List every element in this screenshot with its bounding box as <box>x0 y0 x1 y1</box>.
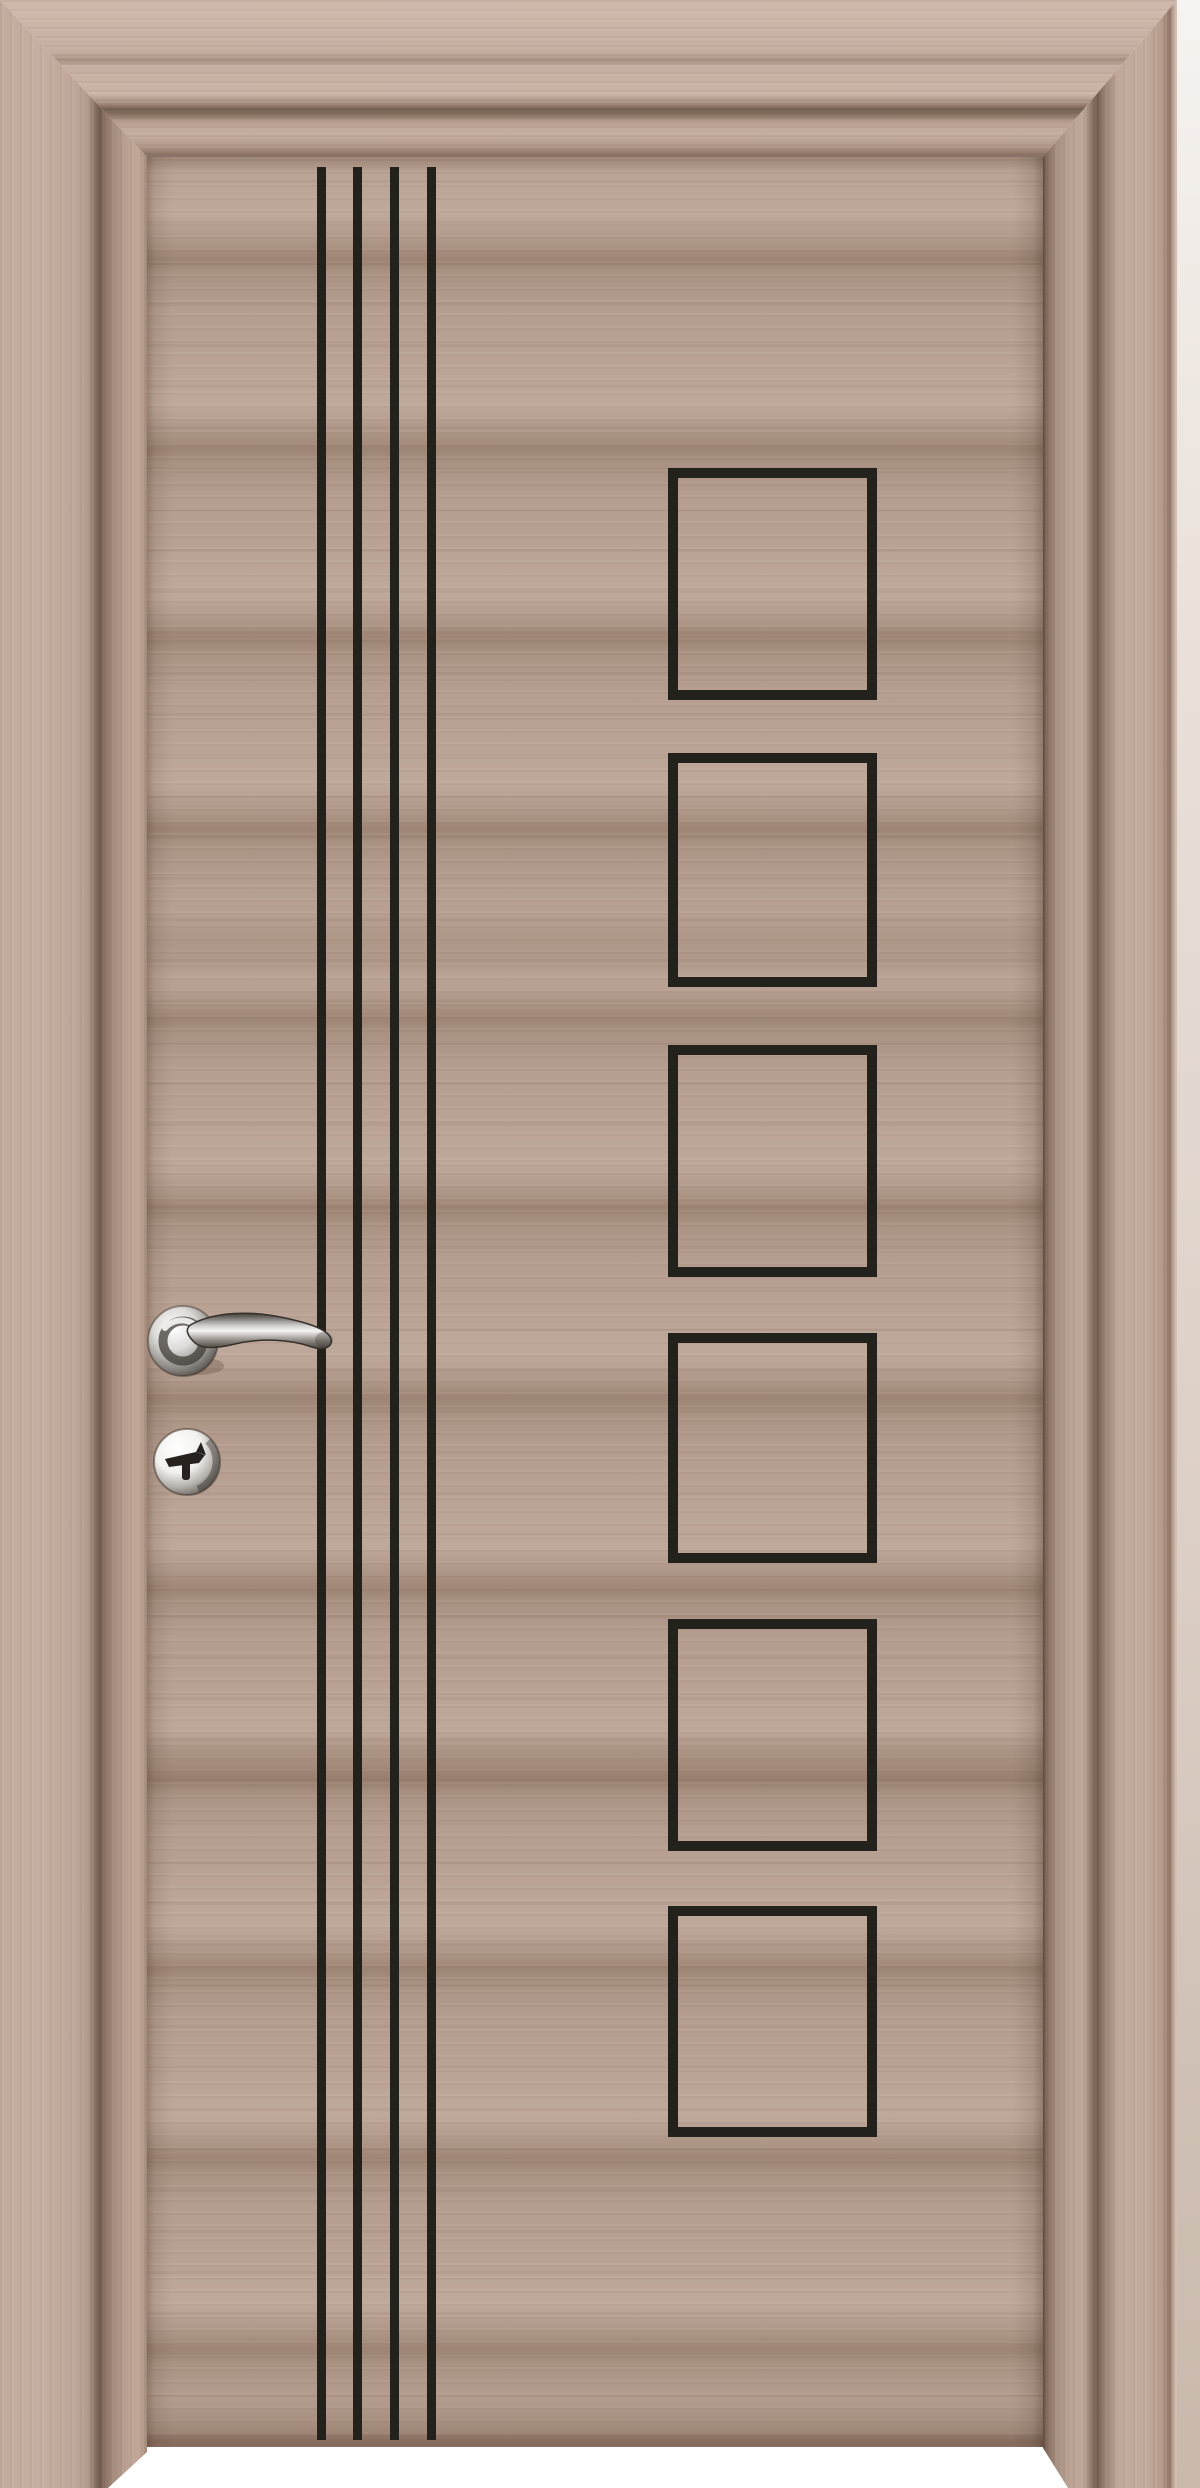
inlay-square <box>668 468 877 700</box>
inlay-square <box>668 753 877 987</box>
lever-tip-shade <box>315 1332 333 1348</box>
inlay-square <box>668 1906 877 2137</box>
door-product-photo <box>0 0 1200 2488</box>
door-handle <box>140 1296 345 1396</box>
lever-handle <box>187 1313 331 1348</box>
floor-background <box>147 2447 1043 2488</box>
inlay-vertical-line <box>353 167 362 2440</box>
inlay-square <box>668 1045 877 1277</box>
inlay-square <box>668 1619 877 1851</box>
inlay-vertical-line <box>390 167 399 2440</box>
inlay-square <box>668 1333 877 1563</box>
lock-escutcheon <box>150 1425 225 1500</box>
wall-strip <box>1177 0 1200 2488</box>
inlay-vertical-line <box>427 167 436 2440</box>
